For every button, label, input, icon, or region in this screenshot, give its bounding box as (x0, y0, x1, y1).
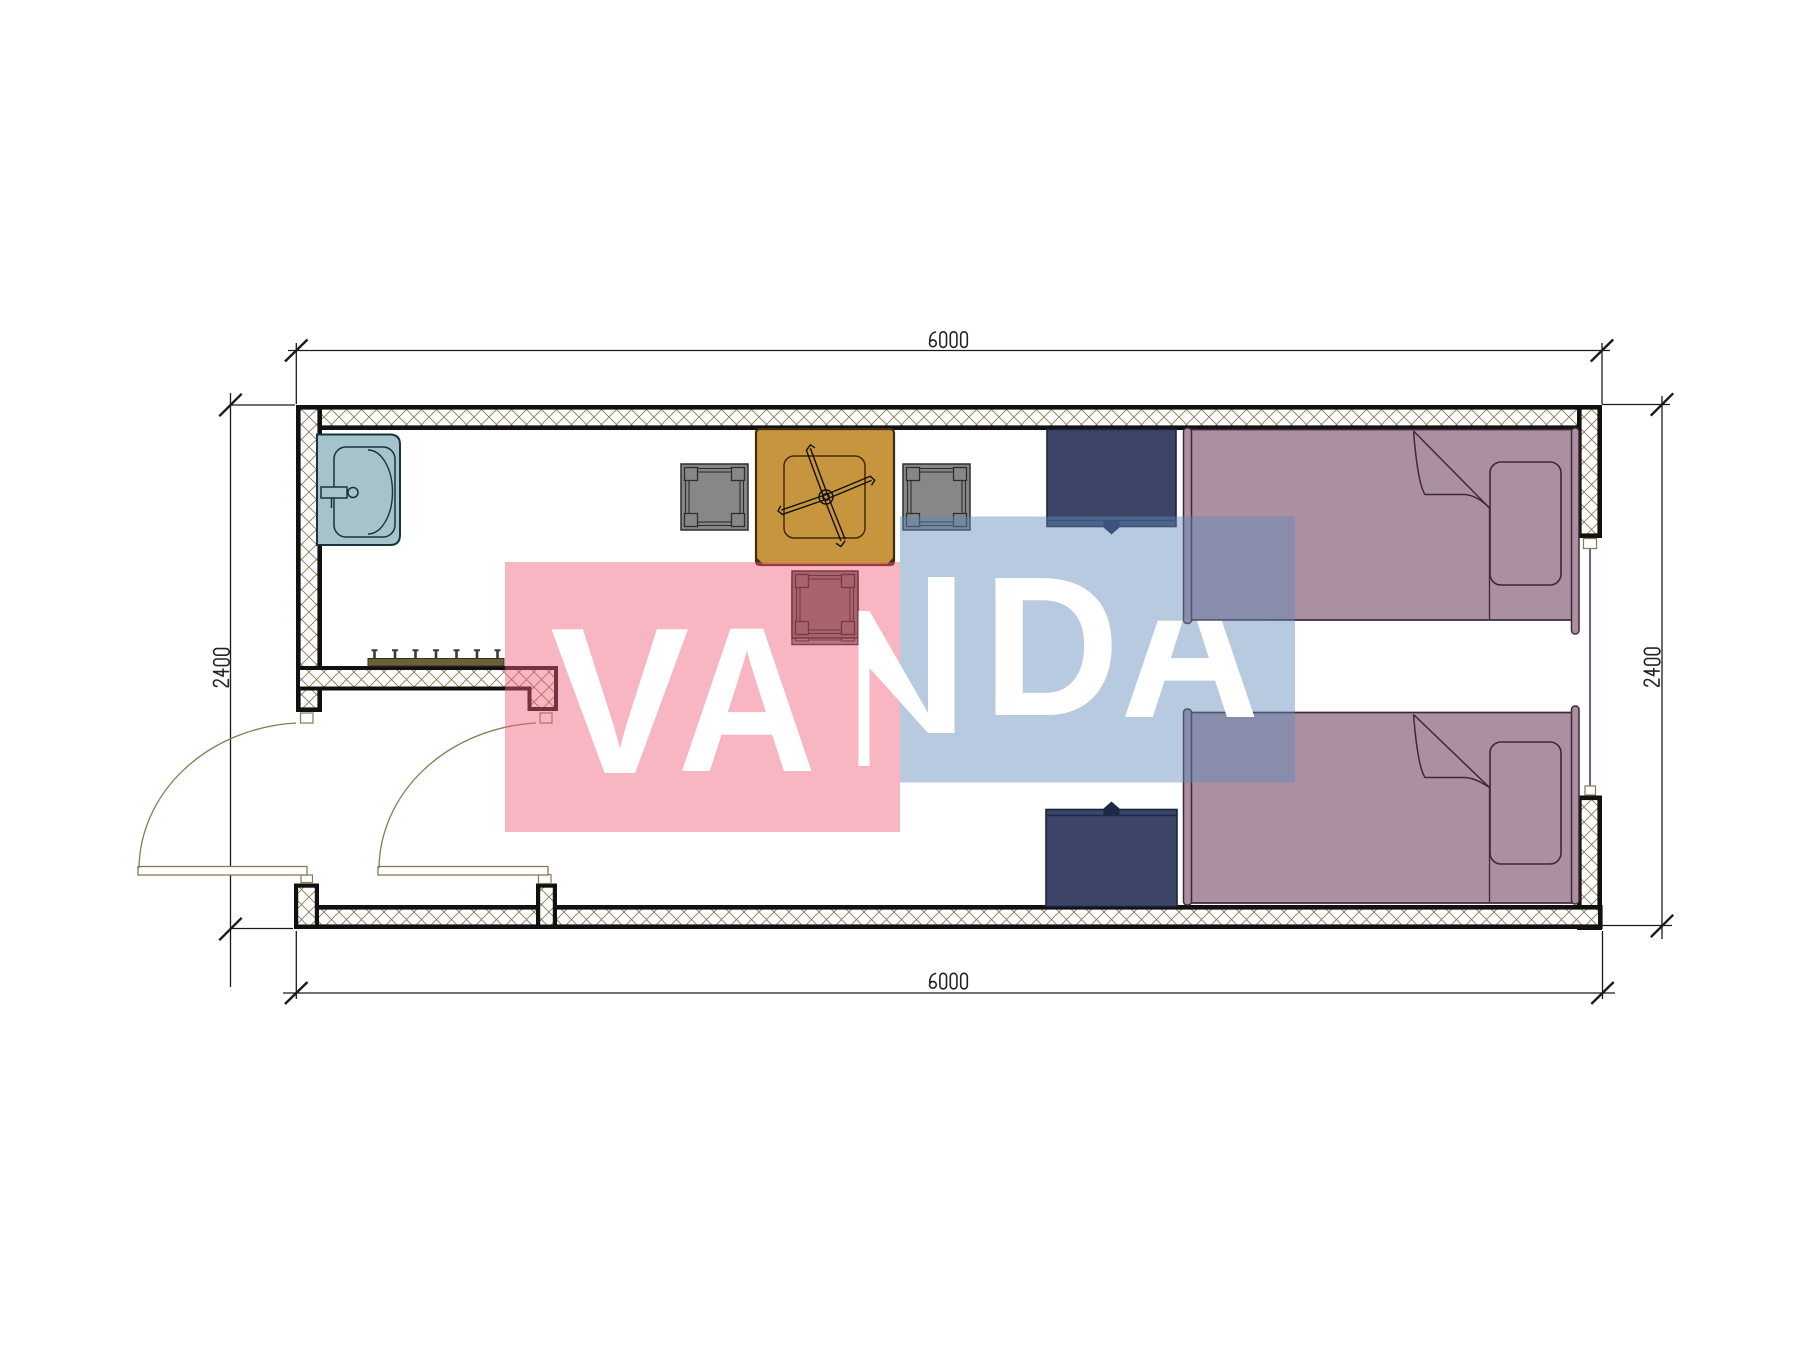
svg-text:A: A (677, 584, 816, 815)
svg-text:V: V (550, 585, 689, 818)
svg-text:D: D (983, 536, 1120, 758)
